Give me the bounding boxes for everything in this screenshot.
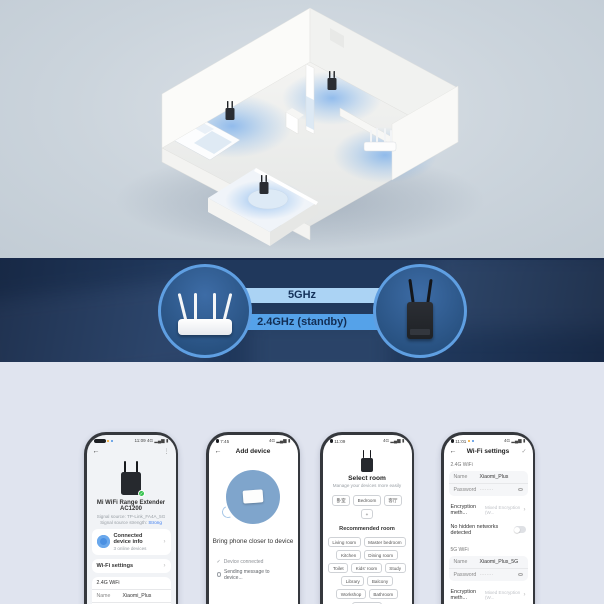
menu-icon[interactable]: ⋮	[160, 448, 170, 455]
eye-icon[interactable]	[518, 488, 523, 491]
devices-icon	[97, 535, 110, 548]
confirm-icon[interactable]: ✓	[517, 448, 527, 455]
chevron-right-icon: ›	[164, 563, 166, 569]
encryption-row[interactable]: Encryption meth... Mixed Encryption (W..…	[444, 500, 533, 520]
camera-cutout-icon	[216, 439, 219, 442]
room-chip[interactable]: Dining room	[364, 550, 398, 560]
chevron-right-icon: ›	[524, 592, 526, 598]
room-chip[interactable]: Kids' room	[351, 563, 382, 573]
notification-dot-icon	[107, 440, 109, 442]
banner-vignette	[0, 260, 604, 362]
eye-icon[interactable]	[518, 573, 523, 576]
room-chip[interactable]: Bedroom	[353, 495, 381, 506]
band-banner: 5GHz 2.4GHz (standby)	[0, 258, 604, 362]
page-subtitle: Manage your devices more easily	[323, 483, 412, 488]
room-chip[interactable]: Toilet	[328, 563, 348, 573]
wifi-settings-row[interactable]: Wi-Fi settings ›	[92, 559, 171, 573]
notification-dot-icon	[468, 440, 470, 442]
page-title: Add device	[225, 448, 282, 455]
encryption-value: Mixed Encryption (W...	[485, 590, 522, 600]
room-chip[interactable]: Balcony	[367, 576, 392, 586]
phone-device-home: 11:09 4G ▂▄▆ ▮ ← ⋮ ✓ Mi WiFi Range Exten…	[84, 432, 178, 604]
status-icons: 11:09 4G ▂▄▆ ▮	[135, 438, 169, 444]
room-chip[interactable]: 卧室	[332, 495, 350, 506]
hidden-networks-toggle[interactable]	[514, 526, 526, 533]
wifi-password-field[interactable]: Password ········	[449, 568, 528, 581]
signal-strength-value: Strong	[148, 520, 162, 525]
phone-wifi-settings: 11:01 4G ▂▄▆ ▮ ← Wi-Fi settings ✓ 2.4G W…	[441, 432, 535, 604]
phone-add-device: 7:45 4G ▂▄▆ ▮ ← Add device Bring phone c…	[206, 432, 300, 604]
my-rooms-chips: 卧室 Bedroom 客厅 +	[323, 492, 412, 522]
band-24g-label: 2.4G WiFi	[444, 458, 533, 469]
room-chip[interactable]: Library	[341, 576, 364, 586]
status-time: 11:09	[334, 439, 345, 444]
house-illustration	[0, 0, 604, 258]
connected-devices-card[interactable]: Connected device info 3 online devices ›	[92, 529, 171, 555]
wifi-password-field[interactable]: Password ········	[449, 483, 528, 496]
hero-section	[0, 0, 604, 258]
recommended-room-label: Recommended room	[323, 526, 412, 532]
add-room-chip[interactable]: +	[361, 509, 373, 519]
wifi-name-field[interactable]: Name Xiaomi_Plus	[92, 589, 171, 602]
chevron-right-icon: ›	[164, 539, 166, 545]
room-chip[interactable]: Kitchen	[336, 550, 360, 560]
notification-dot-icon	[111, 440, 113, 442]
signal-strength: Signal source strength: Strong	[87, 520, 176, 525]
pairing-instruction: Bring phone closer to device	[209, 538, 298, 545]
room-chip[interactable]: Master bedroom	[364, 537, 406, 547]
status-bar: 11:09 4G ▂▄▆ ▮	[87, 435, 176, 446]
page-title: Select room	[323, 475, 412, 482]
room-chip[interactable]: Living room	[328, 537, 361, 547]
app-screens-section: 11:09 4G ▂▄▆ ▮ ← ⋮ ✓ Mi WiFi Range Exten…	[0, 362, 604, 604]
glass-door	[306, 96, 314, 130]
room-chip[interactable]: Study	[385, 563, 406, 573]
signal-arc-icon	[220, 504, 235, 519]
wifi-settings-label: Wi-Fi settings	[97, 563, 164, 569]
band-5g-label: 5G WiFi	[444, 543, 533, 554]
extender-icon	[406, 279, 434, 339]
back-icon[interactable]: ←	[93, 448, 103, 455]
progress-ring-icon	[217, 572, 222, 577]
status-icons: 4G ▂▄▆ ▮	[383, 438, 405, 444]
wifi-name-field[interactable]: Name Xiaomi_Plus	[449, 471, 528, 483]
extender-product-image	[359, 450, 375, 472]
status-bar: 11:01 4G ▂▄▆ ▮	[444, 435, 533, 446]
router-circle	[158, 264, 252, 358]
hidden-networks-row: No hidden networks detected	[444, 520, 533, 540]
room-chip[interactable]: Workshop	[336, 589, 366, 599]
camera-cutout-icon	[330, 439, 333, 442]
status-icons: 4G ▂▄▆ ▮	[504, 438, 526, 444]
card-subtitle: 3 online devices	[114, 546, 160, 551]
page-title: Wi-Fi settings	[460, 448, 517, 455]
status-bar: 11:09 4G ▂▄▆ ▮	[323, 435, 412, 446]
recommended-room-chips: Living room Master bedroom Kitchen Dinin…	[323, 534, 412, 604]
device-top-icon	[243, 489, 264, 503]
encryption-value: Mixed Encryption (W...	[485, 505, 522, 515]
status-icons: 4G ▂▄▆ ▮	[269, 438, 291, 444]
camera-cutout-icon	[451, 439, 454, 442]
device-name: Mi WiFi Range Extender AC1200	[87, 500, 176, 512]
router-icon	[177, 287, 233, 335]
pairing-illustration	[226, 470, 280, 524]
camera-cutout-icon	[94, 439, 106, 443]
extender-circle	[373, 264, 467, 358]
wifi-name-field[interactable]: Name Xiaomi_Plus_5G	[449, 556, 528, 568]
signal-source: Signal source: TP-Link_FA4A_5G	[87, 514, 176, 519]
back-icon[interactable]: ←	[215, 448, 225, 455]
product-page: 5GHz 2.4GHz (standby)	[0, 0, 604, 604]
step-sending-message: Sending message to device...	[209, 567, 298, 583]
status-time: 7:45	[220, 439, 229, 444]
step-device-connected: ✓ Device connected	[209, 557, 298, 567]
status-time: 11:01	[455, 439, 466, 444]
chevron-right-icon: ›	[524, 507, 526, 513]
check-icon: ✓	[217, 559, 221, 565]
extender-product-image: ✓	[116, 461, 146, 497]
band-row: 2.4G WiFi	[92, 577, 171, 589]
encryption-row[interactable]: Encryption meth... Mixed Encryption (W..…	[444, 585, 533, 604]
card-title: Connected device info	[114, 533, 160, 545]
notification-dot-icon	[472, 440, 474, 442]
back-icon[interactable]: ←	[450, 448, 460, 455]
room-chip[interactable]: Bathroom	[369, 589, 398, 599]
status-bar: 7:45 4G ▂▄▆ ▮	[209, 435, 298, 446]
room-chip[interactable]: 客厅	[384, 495, 402, 506]
online-check-badge-icon: ✓	[138, 490, 145, 497]
phone-select-room: 11:09 4G ▂▄▆ ▮ Select room Manage your d…	[320, 432, 414, 604]
